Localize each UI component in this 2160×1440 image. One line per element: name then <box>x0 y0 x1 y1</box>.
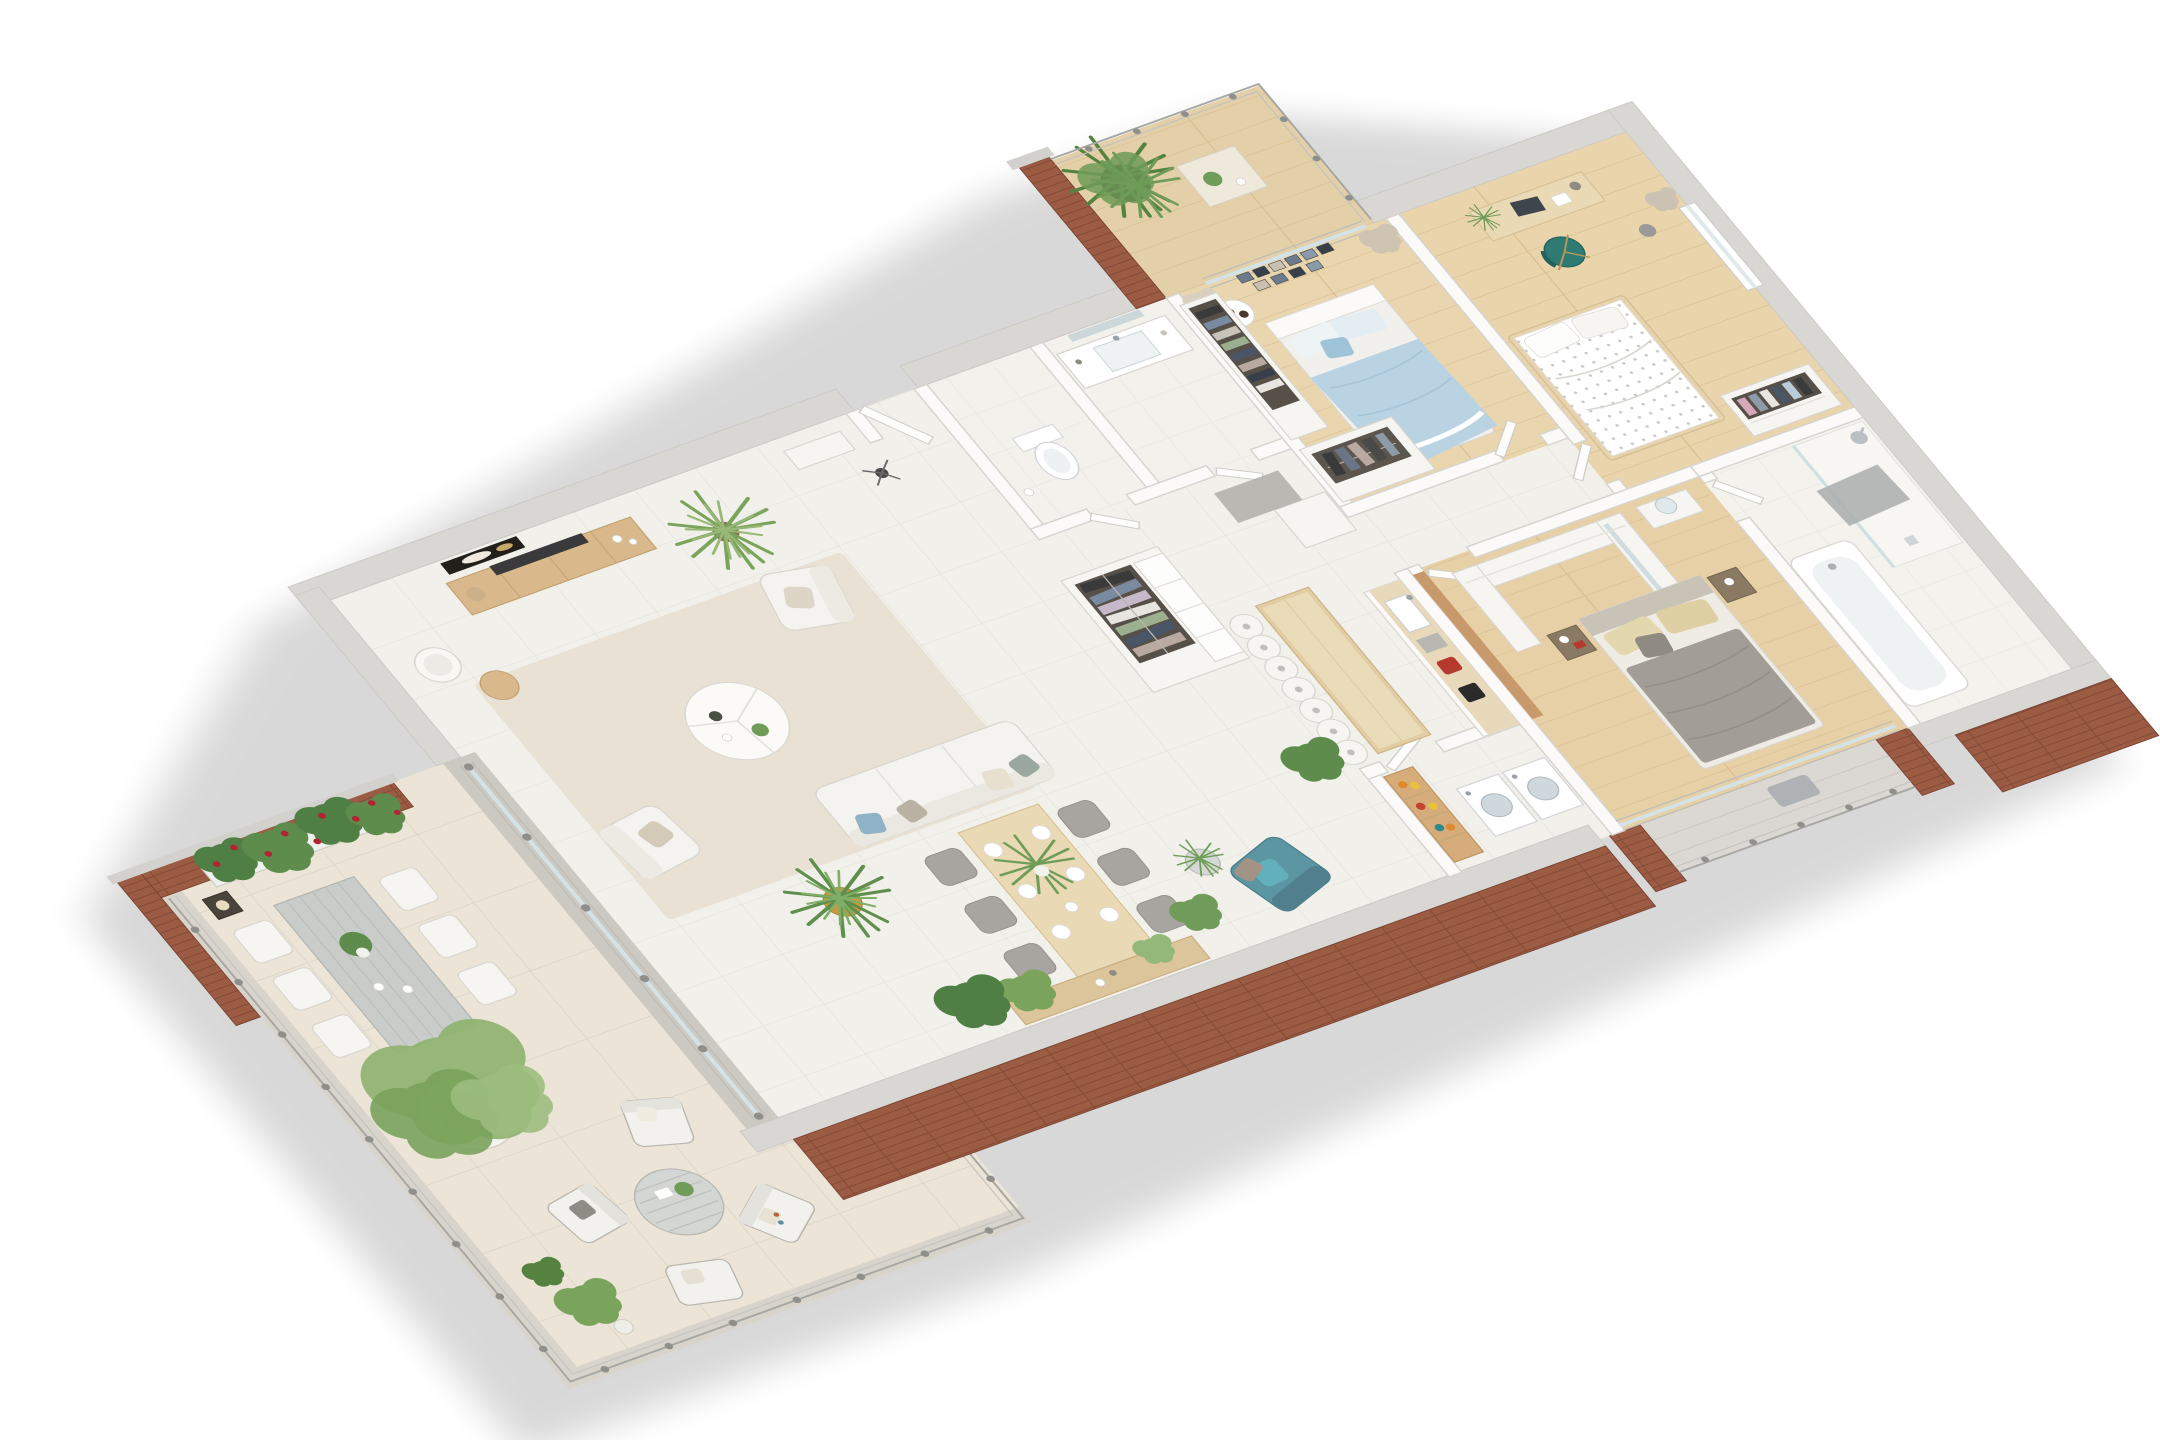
floorplan-svg <box>0 0 2160 1440</box>
floorplan-render-canvas <box>0 0 2160 1440</box>
